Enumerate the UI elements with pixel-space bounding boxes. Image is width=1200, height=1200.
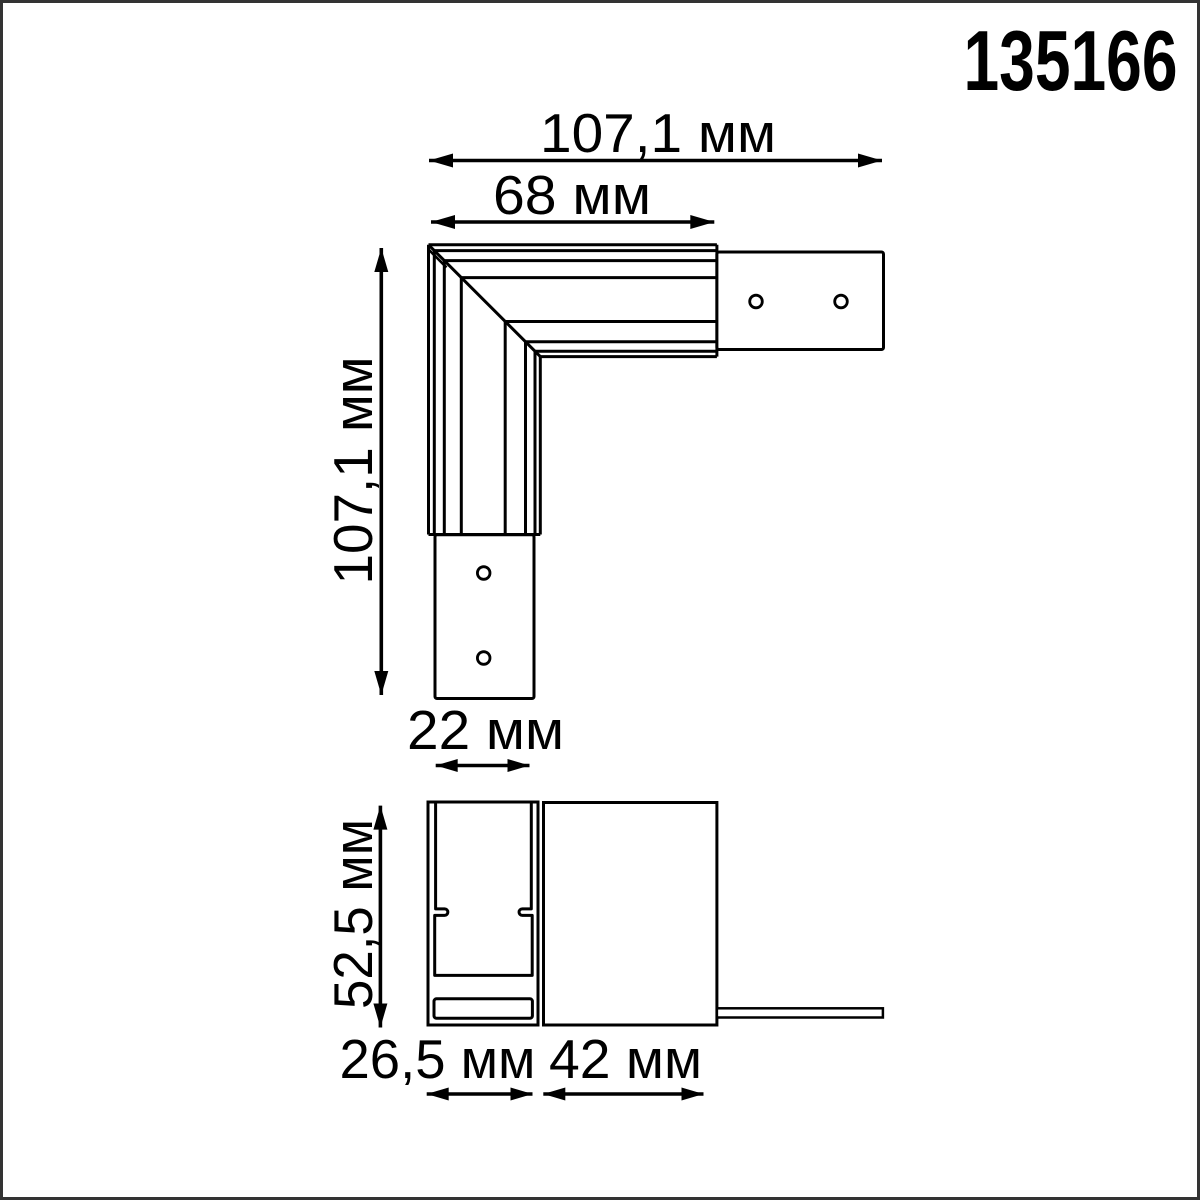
svg-text:22 мм: 22 мм bbox=[407, 699, 564, 761]
svg-text:107,1 мм: 107,1 мм bbox=[322, 357, 384, 585]
svg-text:135166: 135166 bbox=[964, 14, 1178, 109]
svg-text:26,5 мм: 26,5 мм bbox=[340, 1028, 536, 1090]
svg-text:52,5 мм: 52,5 мм bbox=[322, 819, 384, 1009]
svg-text:42 мм: 42 мм bbox=[549, 1028, 702, 1090]
svg-text:107,1 мм: 107,1 мм bbox=[540, 102, 776, 164]
svg-text:68 мм: 68 мм bbox=[493, 164, 651, 226]
